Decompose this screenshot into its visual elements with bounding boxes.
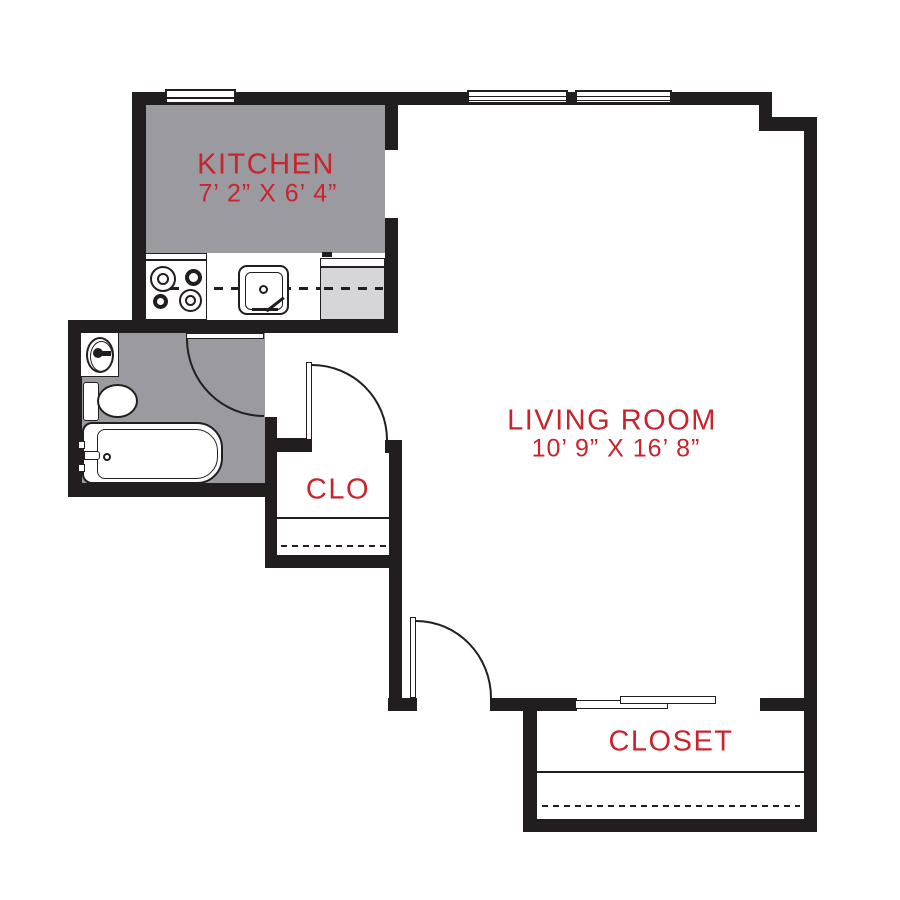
wall-bottom xyxy=(523,819,817,832)
window-living-right xyxy=(575,90,672,104)
floor-plan: KITCHEN 7’ 2” X 6’ 4” LIVING ROOM 10’ 9”… xyxy=(0,0,900,900)
wall-living-west-lower xyxy=(389,440,402,710)
wall-kitchen-west xyxy=(132,92,146,333)
refrigerator-hinge-mark xyxy=(322,252,332,257)
wall-kitchen-east-upper xyxy=(385,100,398,150)
bathtub-icon xyxy=(82,422,223,484)
living-room-label: LIVING ROOM xyxy=(507,405,717,438)
closet-shelf-line xyxy=(537,771,804,773)
window-kitchen xyxy=(165,89,236,104)
closet-sliding-door-back xyxy=(620,696,716,704)
kitchen-dimensions: 7’ 2” X 6’ 4” xyxy=(199,180,338,209)
toilet-bowl-icon xyxy=(97,384,138,418)
living-room-dimensions: 10’ 9” X 16’ 8” xyxy=(532,435,701,464)
counter-dash-stove xyxy=(170,287,183,290)
closet-rod-dashed-line xyxy=(542,805,800,807)
wall-clo-door-right-stub xyxy=(385,440,402,453)
kitchen-sink-icon xyxy=(238,265,289,315)
window-living-left xyxy=(467,90,568,104)
wall-living-bottom-right xyxy=(490,698,577,711)
kitchen-label: KITCHEN xyxy=(197,149,335,182)
wall-kitchen-east-lower xyxy=(385,218,398,333)
closet-label: CLOSET xyxy=(608,726,733,759)
wall-closet-top-right-stub xyxy=(760,698,805,711)
wall-clo-bottom xyxy=(265,555,402,568)
clo-door-swing-arc xyxy=(312,364,388,440)
wall-clo-door-left-stub xyxy=(277,438,312,452)
counter-dash-appliance xyxy=(324,287,383,290)
entry-door-swing-arc xyxy=(416,620,492,698)
clo-rod-dashed-line xyxy=(281,545,386,547)
wall-east xyxy=(804,117,817,832)
wall-closet-left xyxy=(523,698,537,832)
wall-bath-bottom xyxy=(68,483,277,497)
clo-shelf-line xyxy=(277,517,389,519)
bathroom-sink-icon xyxy=(80,332,119,377)
clo-label: CLO xyxy=(306,474,370,507)
